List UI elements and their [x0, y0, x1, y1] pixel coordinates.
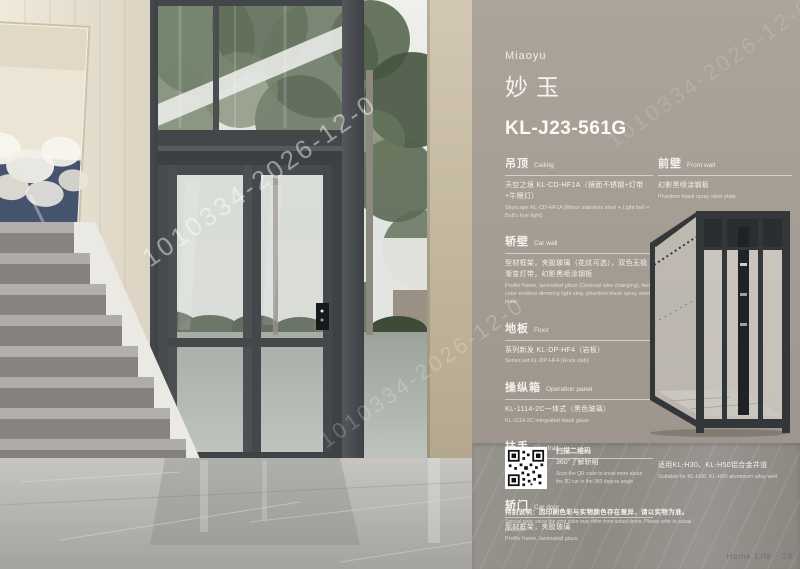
qr-code-icon [507, 449, 545, 487]
brand-name-en: Miaoyu [505, 50, 546, 62]
section-body-cn: 天空之境 KL-CD-HF1A（镜面不锈钢+灯带+牛眼灯） [505, 181, 653, 203]
disclaimer-en: Special note: since the print color may … [505, 519, 695, 534]
qr-caption-en: Scan the QR code to know more about the … [556, 471, 648, 486]
showroom-photo: 1010334-2026-12-0 [0, 0, 472, 569]
cabin-render [640, 203, 800, 439]
section-body-cn: 幻影黑喷涂钢板 [658, 181, 792, 192]
spec-section-floor: 地板Floor 系列新发 KL-DP-HF4（岩板） Series set KL… [505, 320, 653, 366]
suitable-en: Suitable for KL-H30, KL-H50 aluminum all… [658, 473, 796, 481]
qr-code [505, 447, 547, 489]
section-title-en: Ceiling [534, 162, 554, 169]
section-title-en: Car wall [534, 240, 557, 247]
qr-caption-line2: 360°了解轿厢 [556, 458, 648, 469]
disclaimer: 特别说明：因印刷色彩与实物颜色存在差异，请以实物为准。 Special note… [505, 506, 735, 534]
section-title-cn: 操纵箱 [505, 379, 541, 395]
section-body-en: Phantom black spray steel plate [658, 193, 792, 201]
spec-panel: Miaoyu 妙玉 KL-J23-561G 吊顶Ceiling 天空之境 KL-… [472, 0, 800, 569]
suitable-cn: 适用KL-H30、KL-H50铝合金井道 [658, 461, 796, 472]
section-body-en: Profile frame, laminated glass [505, 535, 653, 543]
section-body-cn: KL-1114-2C一体式（黑色玻璃） [505, 405, 653, 416]
section-title-cn: 轿壁 [505, 233, 529, 249]
disclaimer-cn: 特别说明：因印刷色彩与实物颜色存在差异，请以实物为准。 [505, 506, 735, 516]
section-body-en: KL-1114-2C integrated black glass [505, 417, 653, 425]
spec-section-car-wall: 轿壁Car wall 型材框架，夹胶玻璃（花纹可选），双色无极渐变灯带，幻影黑喷… [505, 233, 653, 306]
section-body-en: Skyscape KL-CD-HF1A (Mirror stainless st… [505, 204, 653, 221]
section-title-en: Operation panel [546, 386, 592, 393]
section-body-cn: 系列新发 KL-DP-HF4（岩板） [505, 346, 653, 357]
spec-column-left: 吊顶Ceiling 天空之境 KL-CD-HF1A（镜面不锈钢+灯带+牛眼灯） … [505, 155, 653, 556]
interior-wall-right [427, 0, 472, 462]
section-title-en: Floor [534, 327, 549, 334]
section-body-en: Series set KL-DP-HF4 (Rock slab) [505, 357, 653, 365]
qr-caption-line1: 扫描二维码 [556, 447, 648, 458]
section-title-en: Front wall [687, 162, 715, 169]
spec-section-operation-panel: 操纵箱Operation panel KL-1114-2C一体式（黑色玻璃） K… [505, 379, 653, 425]
elevator-control-panel[interactable] [316, 303, 329, 330]
brand-name-cn: 妙玉 [505, 68, 567, 102]
marble-floor [0, 458, 472, 569]
wall-edge [427, 0, 430, 462]
model-number: KL-J23-561G [505, 118, 627, 140]
section-title-cn: 前壁 [658, 155, 682, 171]
section-body-cn: 型材框架，夹胶玻璃（花纹可选），双色无极渐变灯带，幻影黑喷涂钢板 [505, 259, 653, 281]
catalog-page: 1010334-2026-12-0 Miaoyu 妙玉 KL-J23-561G … [0, 0, 800, 569]
qr-block: 扫描二维码 360°了解轿厢 Scan the QR code to know … [505, 447, 648, 489]
section-title-cn: 吊顶 [505, 155, 529, 171]
section-title-cn: 地板 [505, 320, 529, 336]
page-footer: Home Life · 28 [727, 552, 793, 561]
spec-section-front-wall: 前壁Front wall 幻影黑喷涂钢板 Phantom black spray… [658, 155, 792, 201]
spec-section-ceiling: 吊顶Ceiling 天空之境 KL-CD-HF1A（镜面不锈钢+灯带+牛眼灯） … [505, 155, 653, 220]
section-body-en: Profile frame, laminated glass (Optional… [505, 282, 653, 307]
suitable-for: 适用KL-H30、KL-H50铝合金井道 Suitable for KL-H30… [658, 461, 796, 481]
